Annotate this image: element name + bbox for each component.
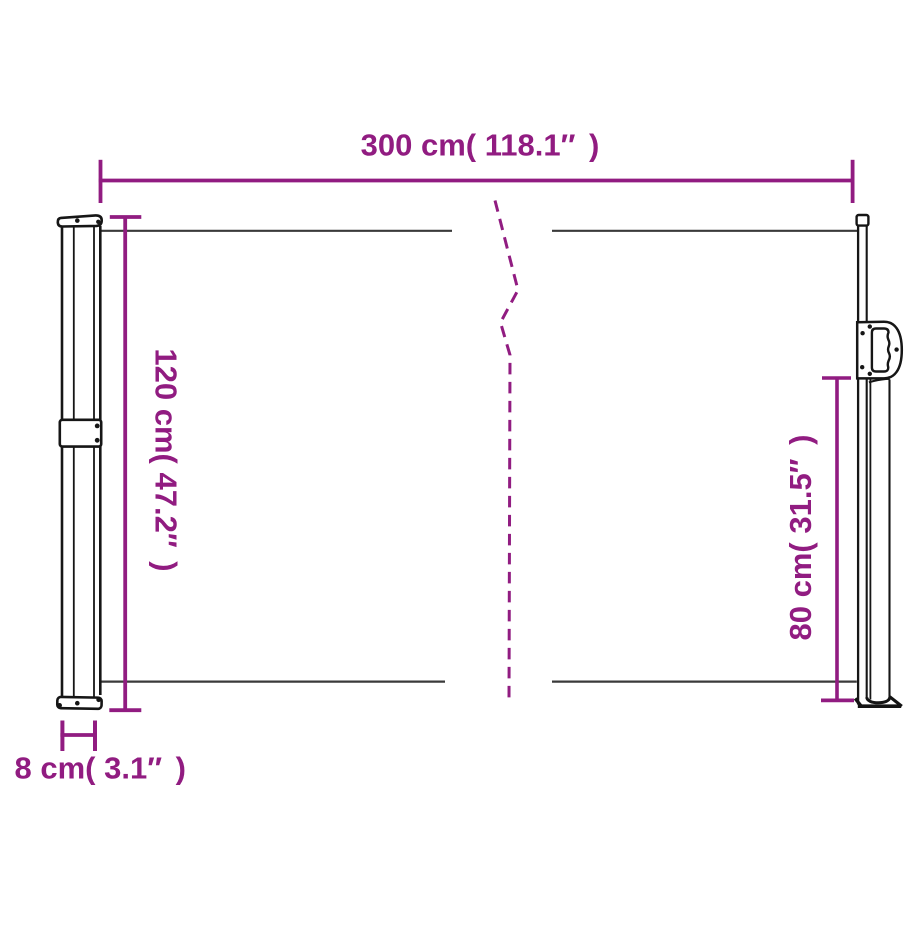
svg-text:300 cm( 118.1″ ): 300 cm( 118.1″ ) bbox=[361, 128, 600, 163]
svg-text:8 cm( 3.1″ ): 8 cm( 3.1″ ) bbox=[15, 751, 186, 786]
svg-text:80 cm( 31.5″ ): 80 cm( 31.5″ ) bbox=[783, 435, 818, 641]
svg-text:120 cm( 47.2″ ): 120 cm( 47.2″ ) bbox=[149, 348, 184, 571]
